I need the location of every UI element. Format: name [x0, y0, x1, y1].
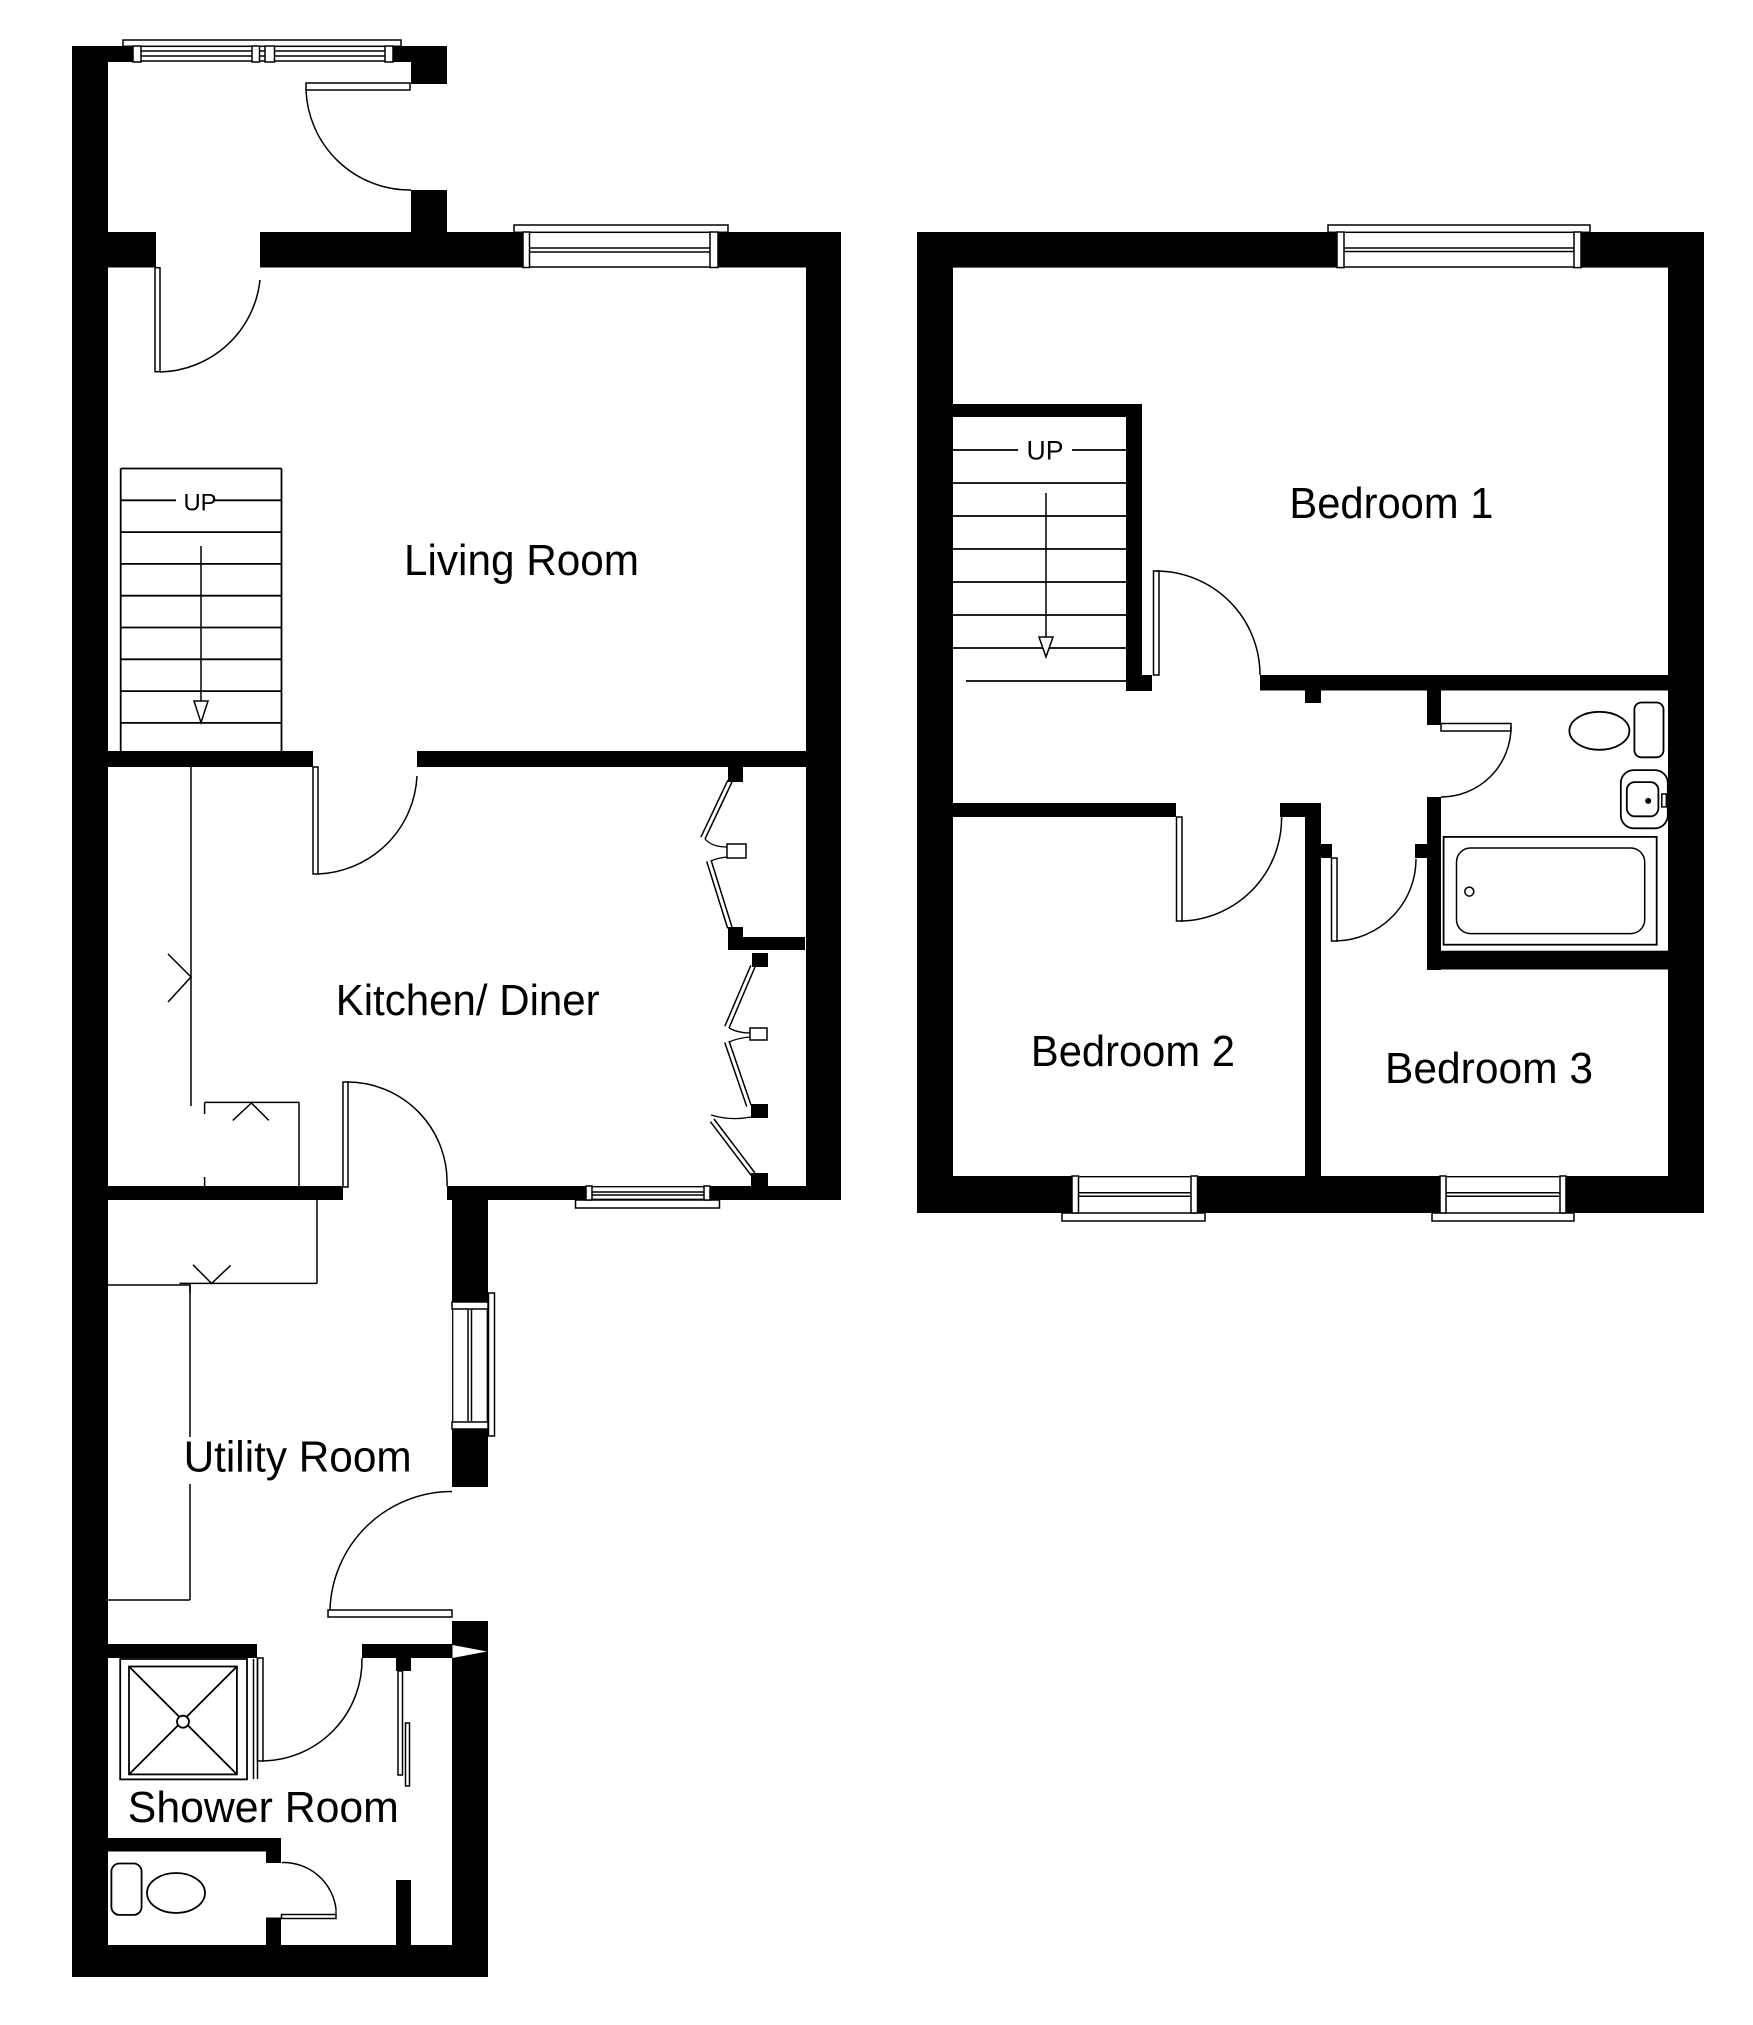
svg-text:Kitchen/ Diner: Kitchen/ Diner [336, 976, 600, 1025]
svg-text:UP: UP [184, 490, 217, 517]
svg-text:Bedroom 1: Bedroom 1 [1289, 479, 1493, 528]
svg-text:Bedroom 3: Bedroom 3 [1385, 1044, 1593, 1093]
svg-text:Shower Room: Shower Room [128, 1783, 399, 1832]
svg-text:Utility Room: Utility Room [184, 1433, 412, 1482]
svg-text:Bedroom 2: Bedroom 2 [1031, 1027, 1235, 1076]
svg-text:Living Room: Living Room [404, 536, 639, 585]
svg-text:UP: UP [1027, 436, 1064, 466]
